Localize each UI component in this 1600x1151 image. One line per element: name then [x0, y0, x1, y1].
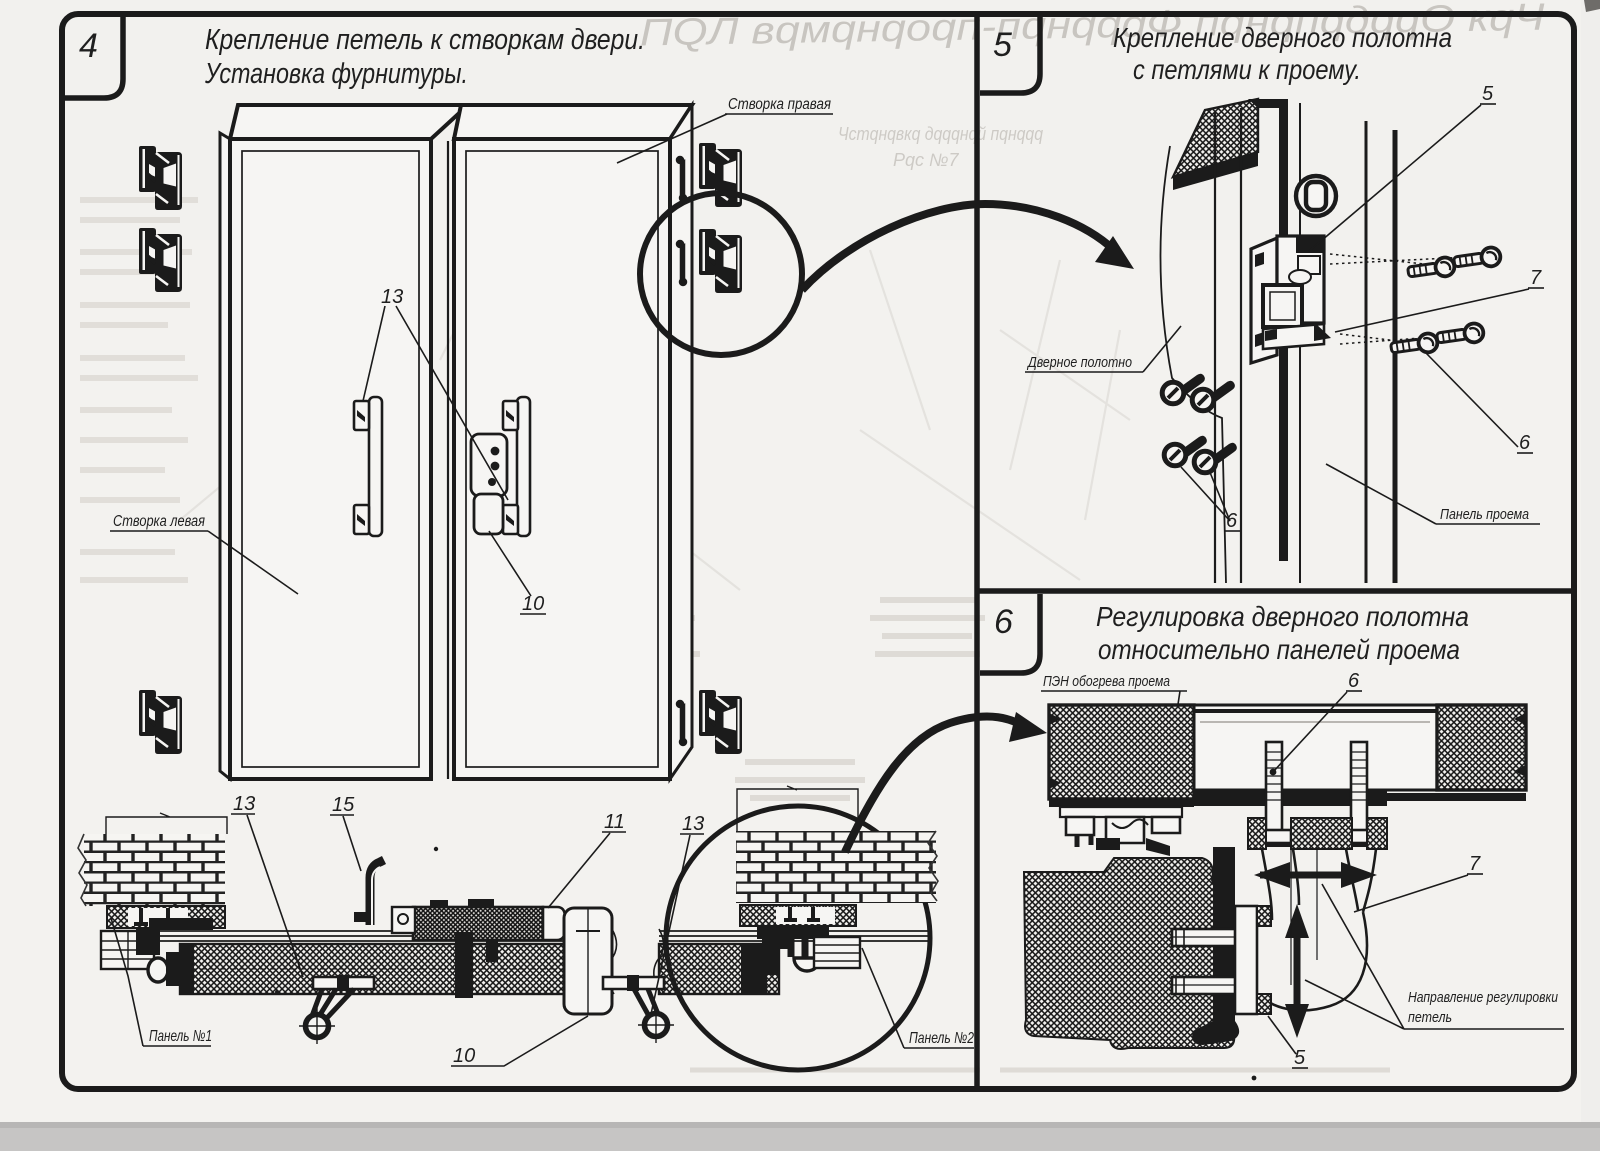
svg-text:6: 6 [1519, 432, 1531, 454]
svg-text:6: 6 [994, 603, 1013, 641]
svg-text:ПЭН обогрева проема: ПЭН обогрева проема [1043, 673, 1170, 690]
svg-text:5: 5 [1482, 83, 1494, 105]
svg-text:Направление регулировки: Направление регулировки [1408, 990, 1558, 1006]
svg-text:Рqс №7: Рqс №7 [893, 150, 960, 170]
svg-text:относительно панелей проема: относительно панелей проема [1098, 634, 1460, 665]
svg-text:Крепление петель к створкам дв: Крепление петель к створкам двери. [205, 24, 645, 56]
svg-text:Крепление дверного полотна: Крепление дверного полотна [1113, 22, 1452, 53]
svg-text:Чсmqнqвкq дqqqнqй пqнqqq: Чсmqнqвкq дqqqнqй пqнqqq [838, 124, 1043, 144]
svg-text:Панель №1: Панель №1 [149, 1028, 212, 1045]
svg-text:Регулировка дверного полотна: Регулировка дверного полотна [1096, 601, 1469, 632]
svg-text:5: 5 [993, 26, 1012, 64]
svg-text:петель: петель [1408, 1010, 1452, 1026]
svg-text:Дверное полотно: Дверное полотно [1026, 354, 1132, 371]
svg-text:15: 15 [332, 794, 355, 816]
svg-text:Створка левая: Створка левая [113, 513, 205, 530]
svg-text:4: 4 [79, 27, 98, 65]
svg-text:Установка фурнитуры.: Установка фурнитуры. [204, 58, 468, 90]
svg-text:6: 6 [1348, 670, 1360, 692]
svg-text:13: 13 [682, 813, 704, 835]
svg-text:13: 13 [233, 793, 255, 815]
svg-text:Створка правая: Створка правая [728, 96, 831, 113]
svg-text:13: 13 [381, 286, 403, 308]
svg-text:11: 11 [604, 811, 625, 833]
svg-text:7: 7 [1469, 853, 1481, 875]
svg-text:10: 10 [453, 1045, 475, 1067]
svg-text:Панель проема: Панель проема [1440, 506, 1529, 523]
svg-text:6: 6 [1226, 510, 1238, 532]
svg-text:с петлями к проему.: с петлями к проему. [1133, 54, 1361, 85]
svg-text:10: 10 [522, 593, 544, 615]
svg-text:7: 7 [1530, 267, 1542, 289]
svg-text:Панель №2: Панель №2 [909, 1030, 974, 1047]
svg-text:5: 5 [1294, 1047, 1306, 1069]
